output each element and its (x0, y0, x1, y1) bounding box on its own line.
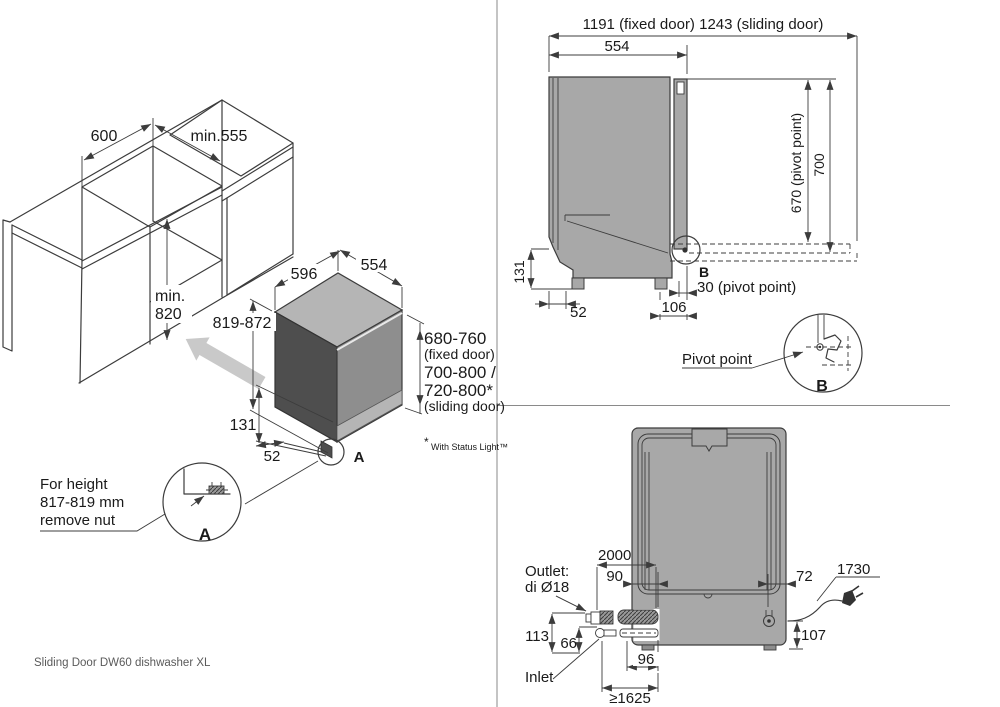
dim-drain-pos: 90 (606, 568, 623, 585)
insert-direction-arrow-icon (186, 337, 266, 389)
dim-niche-width: 600 (91, 128, 118, 145)
dim-stickout: 96 (638, 651, 655, 668)
dim-reach: ≥1625 (609, 690, 651, 707)
inlet-hose (596, 629, 659, 638)
dishwasher-iso (275, 273, 402, 458)
power-plug-icon (842, 586, 863, 606)
dim-dw-width: 596 (291, 266, 318, 283)
dim-line-foot (256, 442, 284, 446)
side-body (549, 77, 672, 278)
detail-b-label: B (816, 378, 828, 395)
dim-pivot-height: 670 (pivot point) (788, 113, 804, 213)
callout-height-line1: For height (40, 476, 108, 493)
pivot-point-dot (682, 247, 687, 252)
dim-top-height: 700 (811, 153, 827, 177)
dim-outlet-height: 113 (525, 628, 549, 645)
side-door-hook (677, 82, 684, 94)
side-foot-left (572, 278, 584, 289)
side-foot-right (655, 278, 667, 289)
dim-total-width: 1191 (fixed door) 1243 (sliding door) (583, 16, 824, 33)
dim-niche-height-min: min. (155, 288, 185, 305)
marker-a-label: A (354, 449, 365, 466)
detail-a-label: A (199, 525, 211, 544)
dim-niche-height-val: 820 (155, 306, 182, 323)
dim-niche-depth: min.555 (191, 128, 248, 145)
outlet-label-2: di Ø18 (525, 579, 569, 596)
label-fixed-door: (fixed door) (424, 346, 495, 362)
counter-drawing (3, 100, 293, 383)
footnote-star: * (424, 435, 429, 449)
dim-plinth-height: 131 (230, 417, 257, 434)
outlet-hose (586, 610, 658, 624)
label-sliding-door: (sliding door) (424, 398, 505, 414)
side-view (531, 36, 862, 392)
callout-height-line2: 817-819 mm (40, 494, 124, 511)
plan-foot-left (642, 645, 654, 650)
dim-cable-pos: 72 (796, 568, 813, 585)
power-cable (788, 600, 842, 621)
dim-side-depth: 554 (604, 38, 629, 55)
footnote-status-light: With Status Light™ (431, 442, 508, 452)
side-door-panel (674, 79, 687, 249)
dim-dw-depth: 554 (361, 257, 388, 274)
drawing-caption: Sliding Door DW60 dishwasher XL (34, 657, 211, 669)
dim-pivot-offset-back: 106 (661, 299, 686, 316)
marker-b-label: B (699, 264, 709, 280)
callout-height-line3: remove nut (40, 512, 116, 529)
dim-foot-inset: 52 (264, 448, 281, 465)
dim-cable-length: 1730 (837, 561, 870, 578)
dim-cable-height: 107 (801, 627, 826, 644)
inlet-label: Inlet (525, 669, 554, 686)
installation-drawing-page: 600 min.555 min. 820 596 554 819-872 131… (0, 0, 1000, 707)
dim-hose-length: 2000 (598, 547, 631, 564)
dim-dw-height: 819-872 (213, 315, 272, 332)
dim-side-foot: 52 (570, 304, 587, 321)
outlet-label-1: Outlet: (525, 563, 569, 580)
dim-pivot-offset: 30 (pivot point) (697, 279, 796, 296)
dim-inlet-height: 66 (560, 635, 577, 652)
dim-side-plinth: 131 (511, 260, 527, 284)
pivot-point-label: Pivot point (682, 351, 753, 368)
dim-sliding-range-1: 700-800 / (424, 363, 496, 382)
technical-drawing: 600 min.555 min. 820 596 554 819-872 131… (0, 0, 1000, 707)
plan-foot-right (764, 645, 776, 650)
